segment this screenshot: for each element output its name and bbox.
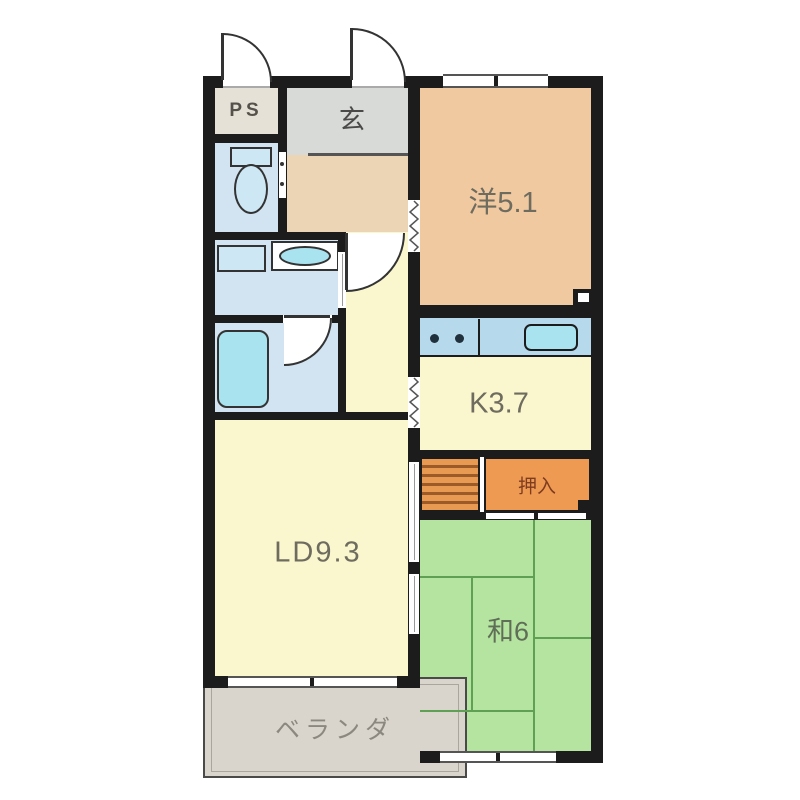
window-tick (494, 76, 498, 86)
wall-genkan-bottom (203, 232, 346, 240)
room-genkan-floor (287, 155, 408, 232)
wall-top (404, 76, 443, 88)
door-leaf (221, 33, 224, 80)
wall-right (591, 76, 603, 763)
toilet-door (279, 152, 286, 198)
label-ps: PS (229, 100, 262, 122)
genkan-step-line (308, 153, 408, 156)
wall-ps-bottom (215, 134, 278, 143)
tatami-line (420, 710, 533, 712)
label-veranda: ベランダ (275, 710, 395, 746)
tatami-line (420, 576, 533, 578)
wall-left (203, 76, 215, 688)
door-leaf (284, 315, 330, 318)
label-living: LD9.3 (274, 537, 361, 570)
wall-japanese-bottom (420, 751, 440, 763)
wall-genkan-western (408, 88, 420, 305)
kitchen-sink-icon (524, 324, 578, 351)
door-swing-icon (352, 28, 406, 82)
accordion-door-icon (408, 377, 420, 428)
window-tick (310, 678, 314, 686)
window-tick (496, 753, 500, 761)
pillar-closet-corner (578, 500, 591, 512)
floor-plan: PS 玄 洋5.1 K3.7 押入 LD9.3 和6 ベランダ (0, 0, 800, 800)
door-hinge-dot (280, 162, 284, 166)
tatami-line (533, 520, 535, 751)
counter-divider-line (478, 319, 480, 355)
wall-ld-bottom (203, 676, 228, 688)
label-japanese: 和6 (487, 610, 529, 649)
label-western: 洋5.1 (468, 179, 537, 221)
label-genkan: 玄 (339, 100, 365, 137)
door-tick (408, 562, 420, 574)
washbasin-sink-icon (279, 246, 331, 266)
wall-bathroom-right (338, 323, 346, 412)
door-hinge-dot (280, 182, 284, 186)
tatami-line (533, 637, 591, 639)
label-closet: 押入 (518, 472, 556, 499)
bathtub-icon (217, 330, 269, 408)
tatami-line (471, 577, 473, 710)
storage-striped (420, 457, 480, 512)
door-tick (534, 513, 538, 519)
door-leaf (350, 28, 353, 80)
sliding-door (409, 462, 419, 562)
label-kitchen: K3.7 (469, 388, 529, 421)
washing-machine-icon (217, 245, 266, 272)
stove-burner-icon (455, 334, 464, 343)
wall-western-bottom (408, 305, 603, 318)
wall-ld-bottom (397, 676, 420, 688)
toilet-bowl-icon (234, 164, 268, 214)
wall-kitchen-bottom (420, 450, 591, 457)
door-leaf (345, 233, 348, 290)
sliding-door (409, 574, 419, 634)
stove-burner-icon (430, 334, 439, 343)
door-swing-icon (223, 33, 272, 82)
wall-top (270, 76, 352, 88)
pillar-notch (578, 293, 589, 302)
wall-bathroom-bottom (203, 412, 420, 420)
accordion-door-icon (408, 200, 420, 252)
wall-japanese-bottom (556, 751, 603, 763)
